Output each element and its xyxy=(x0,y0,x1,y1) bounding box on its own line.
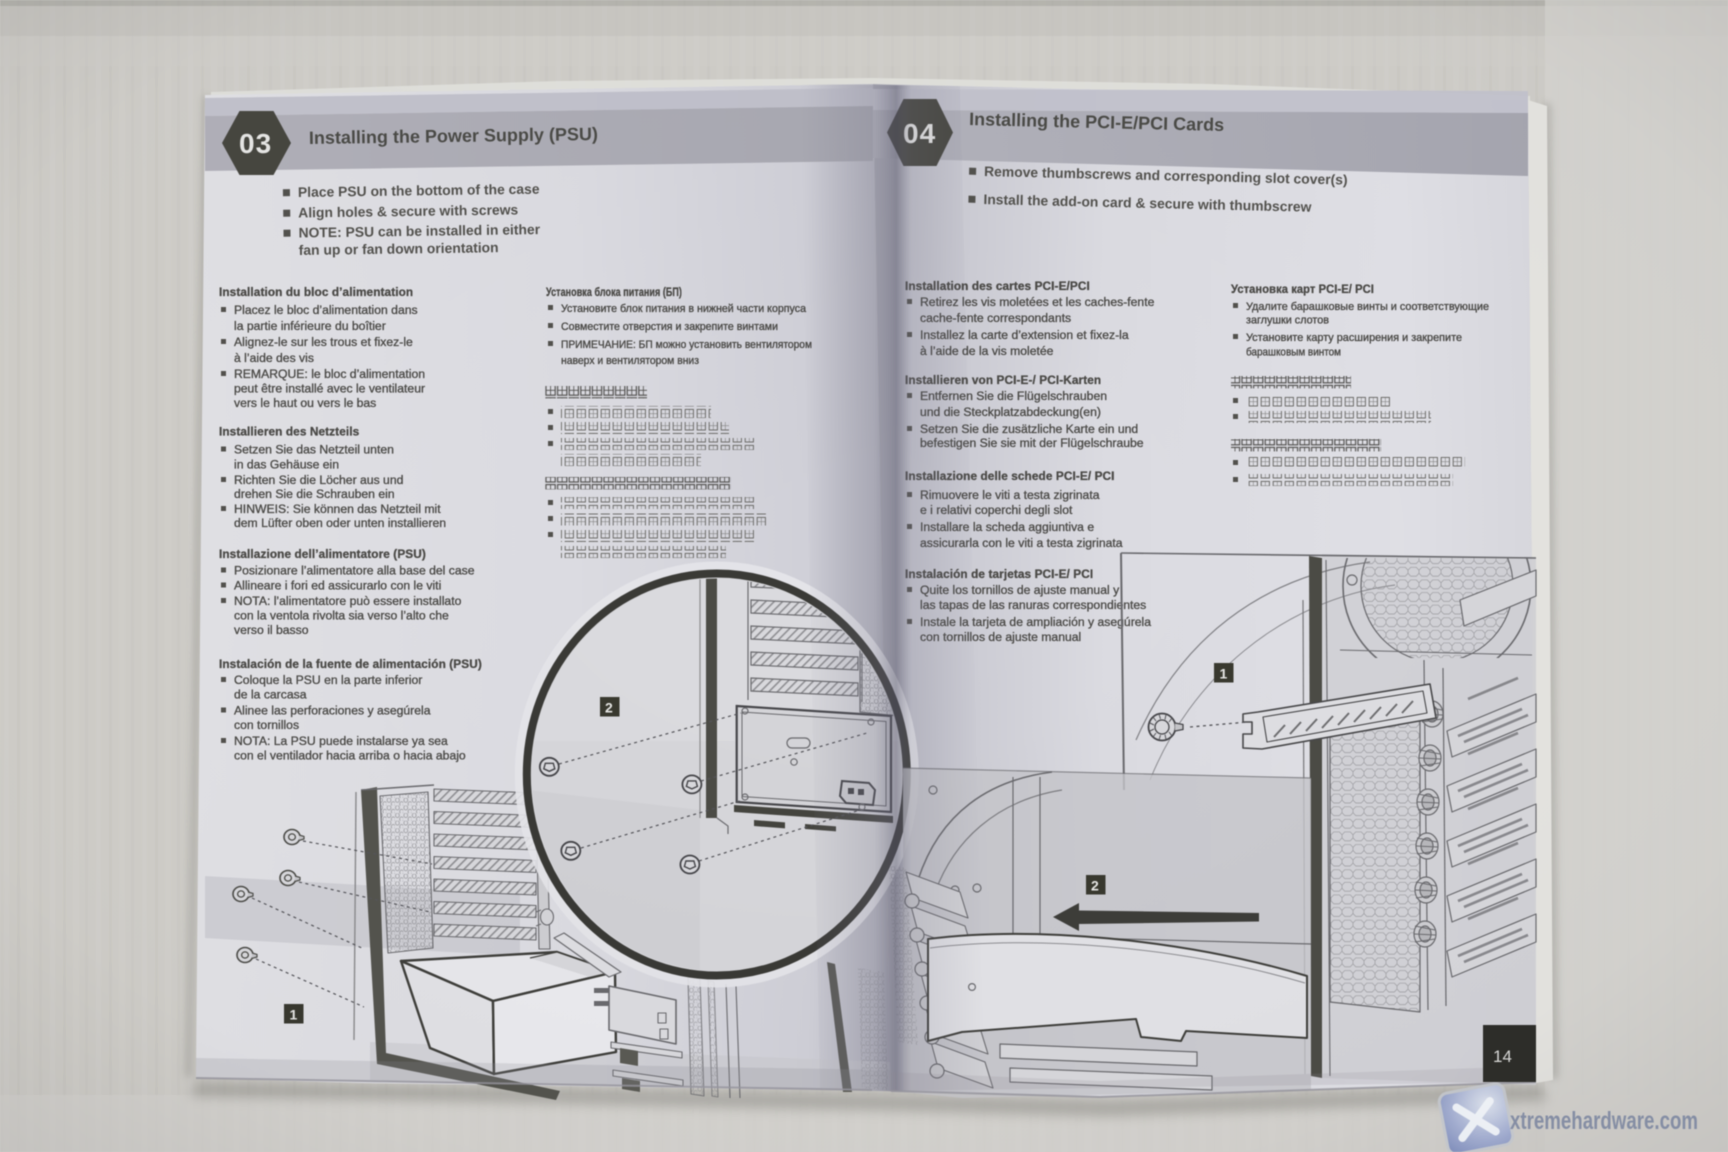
svg-text:xtremehardware.com: xtremehardware.com xyxy=(1510,1107,1698,1135)
